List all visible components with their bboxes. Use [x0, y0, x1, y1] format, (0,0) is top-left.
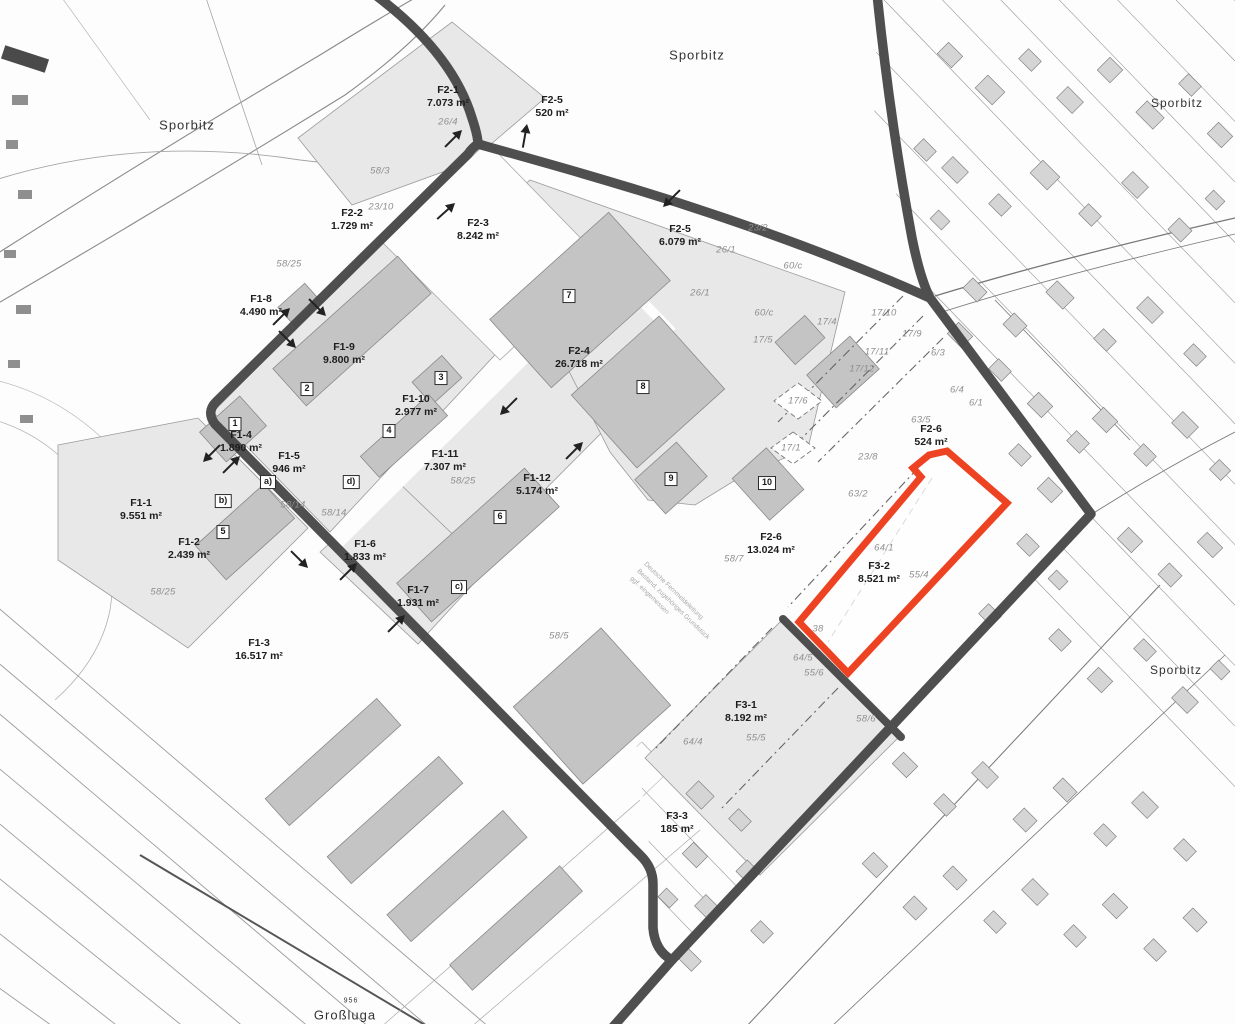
cadastral-map: SporbitzSporbitzSporbitzSporbitzGroßluga…	[0, 0, 1235, 1024]
map-canvas	[0, 0, 1235, 1024]
